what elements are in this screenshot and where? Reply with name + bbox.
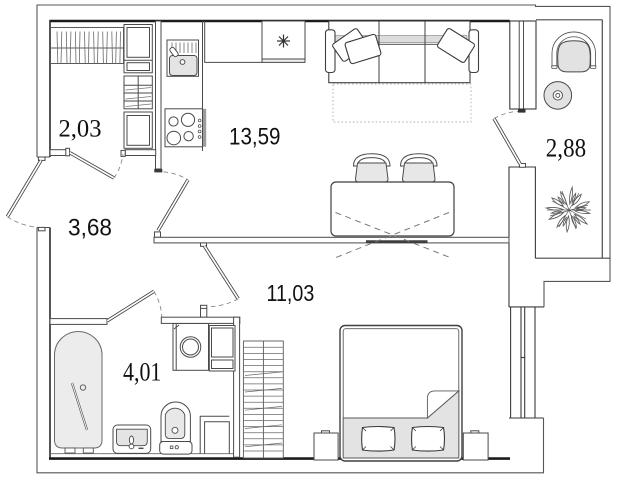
svg-text:11,03: 11,03: [267, 280, 315, 306]
svg-text:2,88: 2,88: [546, 134, 586, 163]
svg-text:4,01: 4,01: [123, 357, 161, 386]
svg-text:2,03: 2,03: [59, 114, 102, 143]
svg-text:3,68: 3,68: [68, 215, 112, 242]
svg-text:13,59: 13,59: [229, 124, 281, 151]
